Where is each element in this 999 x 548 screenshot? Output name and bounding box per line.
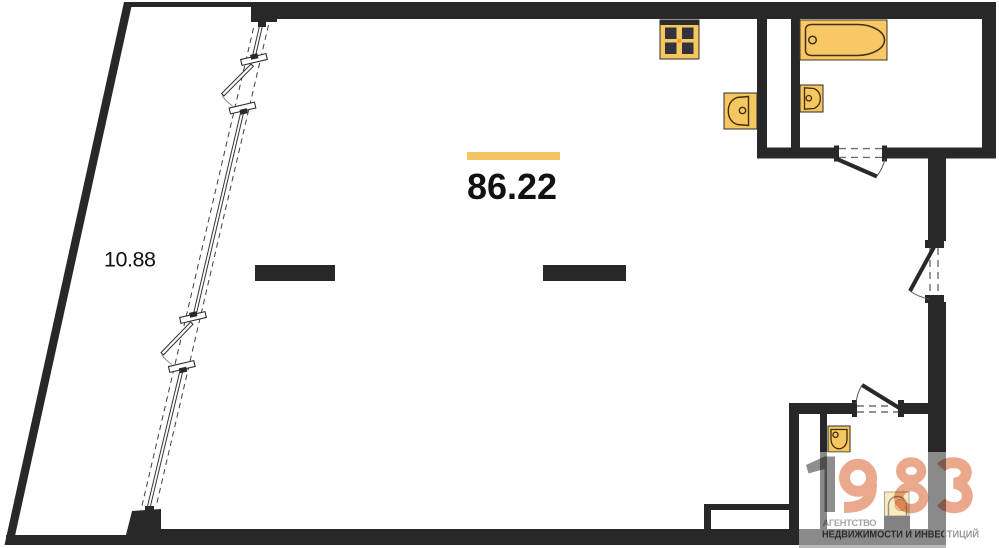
svg-text:АГЕНТСТВО: АГЕНТСТВО [823,518,877,528]
svg-text:86.22: 86.22 [467,166,557,207]
svg-text:НЕДВИЖИМОСТИ И ИНВЕСТИЦИЙ: НЕДВИЖИМОСТИ И ИНВЕСТИЦИЙ [822,528,979,541]
svg-text:10.88: 10.88 [104,248,156,272]
